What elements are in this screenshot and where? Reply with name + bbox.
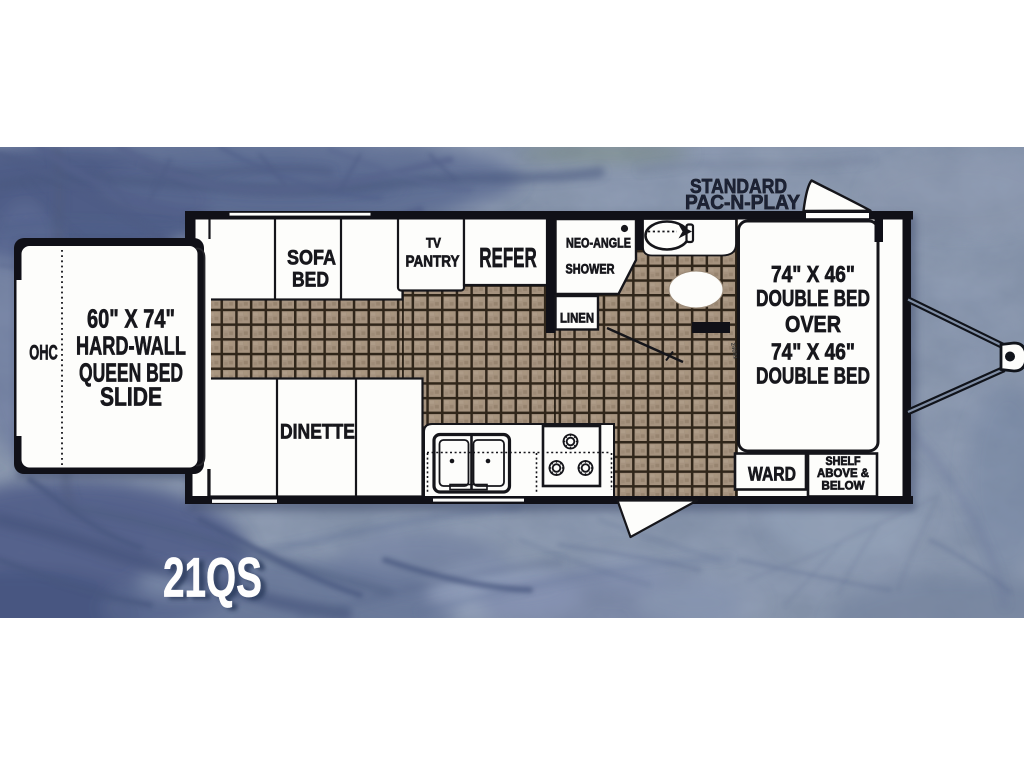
svg-text:BELOW: BELOW: [822, 481, 865, 493]
svg-text:REFER: REFER: [479, 242, 537, 273]
svg-text:SHOWER: SHOWER: [566, 262, 615, 277]
svg-text:HARD-WALL: HARD-WALL: [76, 331, 186, 361]
svg-text:BED: BED: [292, 269, 329, 292]
svg-text:DOUBLE BED: DOUBLE BED: [756, 363, 870, 389]
svg-text:60" X 74": 60" X 74": [87, 304, 175, 334]
svg-text:DOUBLE BED: DOUBLE BED: [756, 285, 870, 311]
svg-text:WARD: WARD: [748, 465, 796, 486]
svg-text:OVER: OVER: [785, 311, 841, 337]
svg-text:LINEN: LINEN: [560, 311, 594, 326]
svg-text:ABOVE &: ABOVE &: [817, 468, 869, 480]
svg-text:TV: TV: [426, 235, 442, 251]
svg-text:DINETTE: DINETTE: [280, 421, 355, 444]
svg-text:74" X 46": 74" X 46": [771, 339, 855, 365]
svg-text:PANTRY: PANTRY: [406, 254, 460, 271]
svg-text:SLIDE: SLIDE: [100, 382, 162, 412]
svg-text:21QS: 21QS: [163, 546, 262, 609]
svg-text:SOFA: SOFA: [287, 247, 336, 270]
svg-text:OHC: OHC: [29, 342, 58, 365]
svg-text:74" X 46": 74" X 46": [771, 261, 855, 287]
svg-text:PAC-N-PLAY: PAC-N-PLAY: [685, 192, 801, 214]
svg-text:NEO-ANGLE: NEO-ANGLE: [566, 236, 631, 251]
svg-text:SHELF: SHELF: [826, 456, 861, 468]
